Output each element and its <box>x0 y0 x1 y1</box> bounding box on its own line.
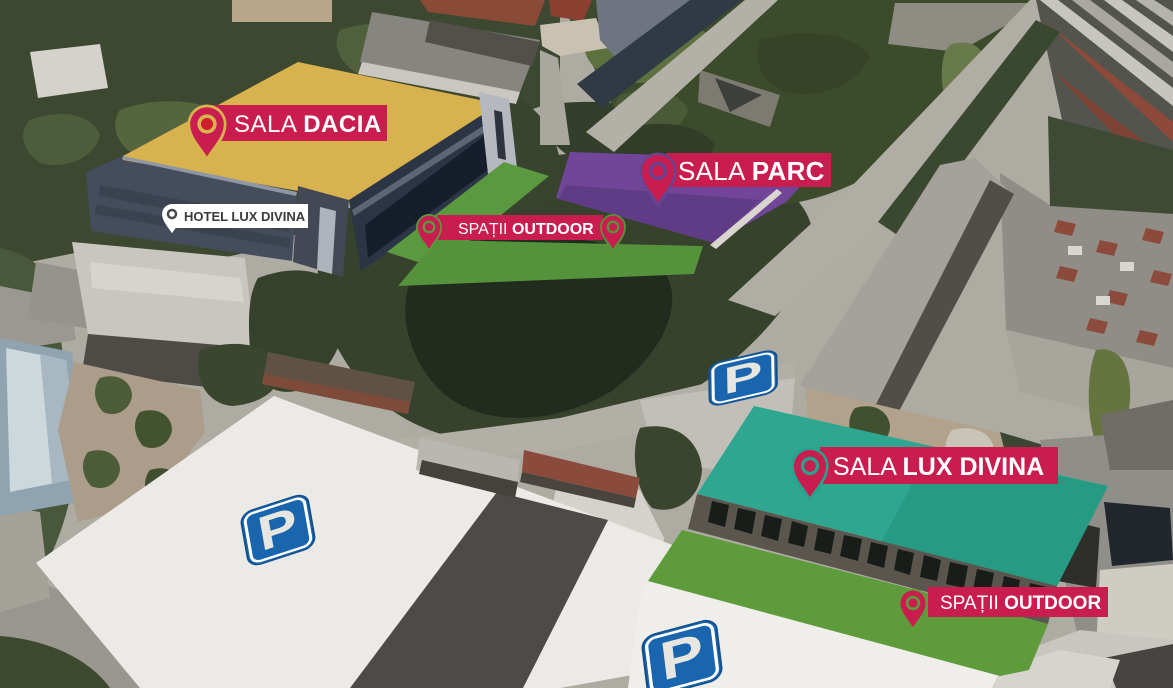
svg-text:SALA DACIA: SALA DACIA <box>234 111 382 138</box>
svg-text:SALA LUX DIVINA: SALA LUX DIVINA <box>833 453 1044 481</box>
svg-text:SPAȚII OUTDOOR: SPAȚII OUTDOOR <box>940 593 1101 614</box>
svg-text:SALA PARC: SALA PARC <box>678 156 825 186</box>
svg-text:SPAȚII OUTDOOR: SPAȚII OUTDOOR <box>458 221 594 238</box>
svg-text:P: P <box>657 621 707 688</box>
svg-text:HOTEL LUX DIVINA: HOTEL LUX DIVINA <box>184 209 306 224</box>
